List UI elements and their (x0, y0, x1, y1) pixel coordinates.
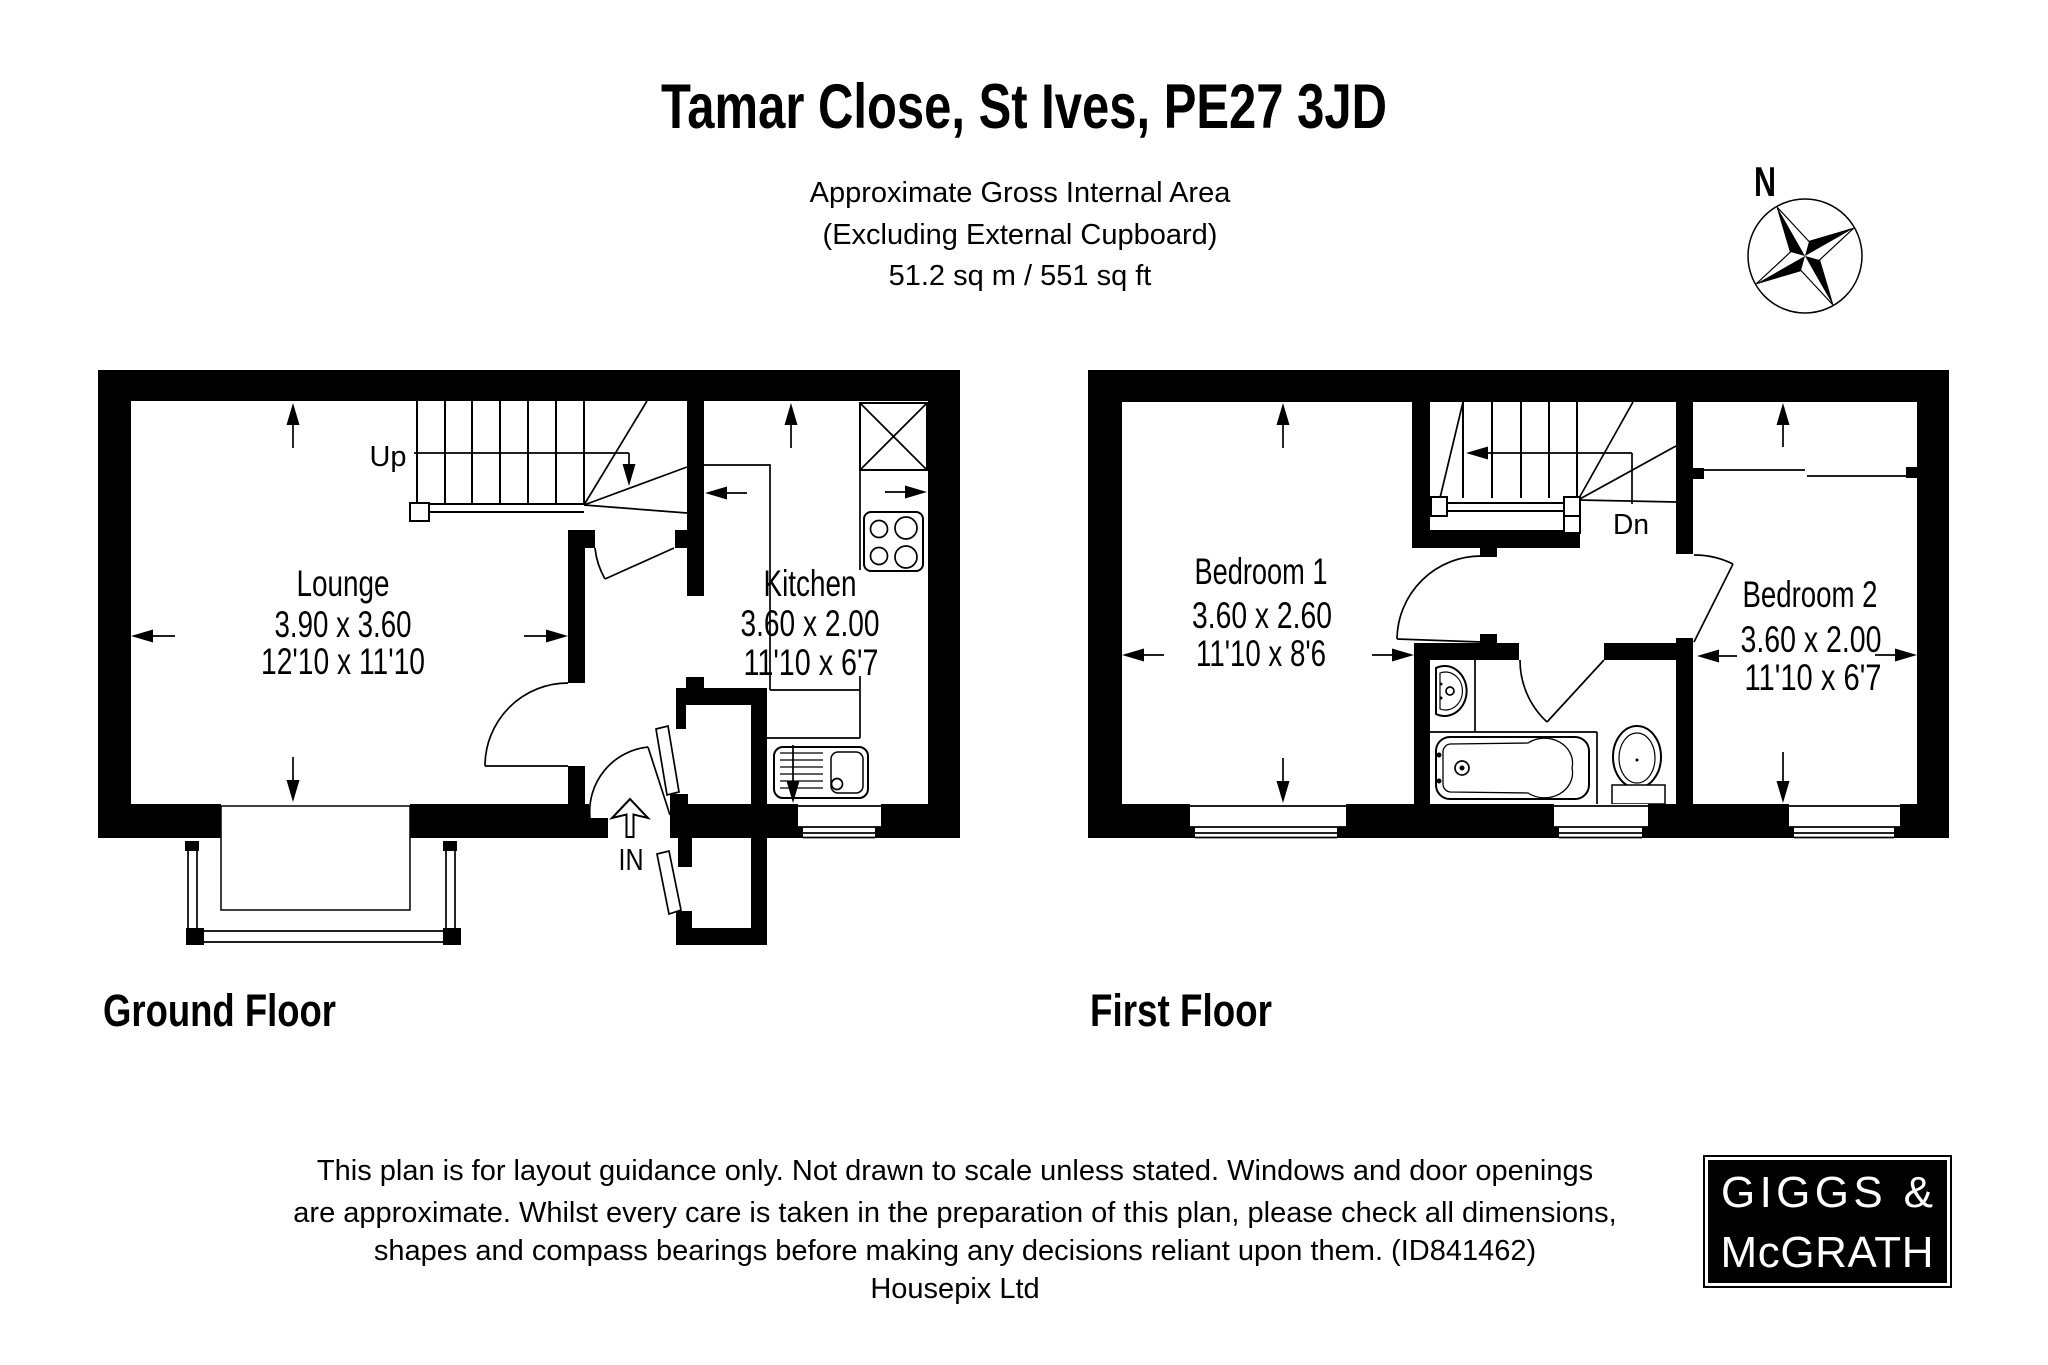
svg-text:Dn: Dn (1613, 509, 1649, 541)
svg-text:Tamar Close, St Ives, PE27 3JD: Tamar Close, St Ives, PE27 3JD (661, 72, 1387, 142)
svg-text:Ground Floor: Ground Floor (103, 985, 336, 1036)
svg-text:Kitchen: Kitchen (764, 563, 857, 604)
svg-text:11'10 x 6'7: 11'10 x 6'7 (1745, 657, 1882, 698)
svg-text:3.60 x 2.00: 3.60 x 2.00 (1741, 619, 1882, 660)
svg-text:First Floor: First Floor (1090, 985, 1272, 1036)
svg-text:This plan is for layout guidan: This plan is for layout guidance only. N… (317, 1155, 1593, 1187)
svg-text:3.90 x 3.60: 3.90 x 3.60 (275, 604, 412, 645)
svg-text:(Excluding External Cupboard): (Excluding External Cupboard) (823, 219, 1218, 251)
svg-text:3.60 x 2.00: 3.60 x 2.00 (741, 603, 880, 644)
svg-text:Approximate Gross Internal Are: Approximate Gross Internal Area (810, 177, 1232, 209)
svg-text:Housepix Ltd: Housepix Ltd (870, 1273, 1039, 1305)
svg-text:Bedroom 2: Bedroom 2 (1743, 574, 1878, 615)
svg-text:Up: Up (370, 441, 407, 473)
svg-text:McGRATH: McGRATH (1721, 1228, 1934, 1277)
svg-text:are approximate. Whilst every: are approximate. Whilst every care is ta… (293, 1197, 1616, 1229)
svg-text:3.60 x 2.60: 3.60 x 2.60 (1192, 595, 1332, 636)
svg-text:Bedroom 1: Bedroom 1 (1195, 551, 1328, 592)
svg-text:IN: IN (619, 842, 644, 877)
svg-text:11'10 x 6'7: 11'10 x 6'7 (744, 642, 879, 683)
svg-text:12'10 x 11'10: 12'10 x 11'10 (261, 641, 425, 682)
svg-text:Lounge: Lounge (297, 563, 390, 604)
svg-text:11'10 x 8'6: 11'10 x 8'6 (1196, 633, 1326, 674)
svg-text:N: N (1754, 158, 1776, 205)
svg-text:51.2 sq m / 551 sq ft: 51.2 sq m / 551 sq ft (889, 260, 1152, 292)
svg-text:shapes and compass bearings be: shapes and compass bearings before makin… (374, 1235, 1536, 1267)
